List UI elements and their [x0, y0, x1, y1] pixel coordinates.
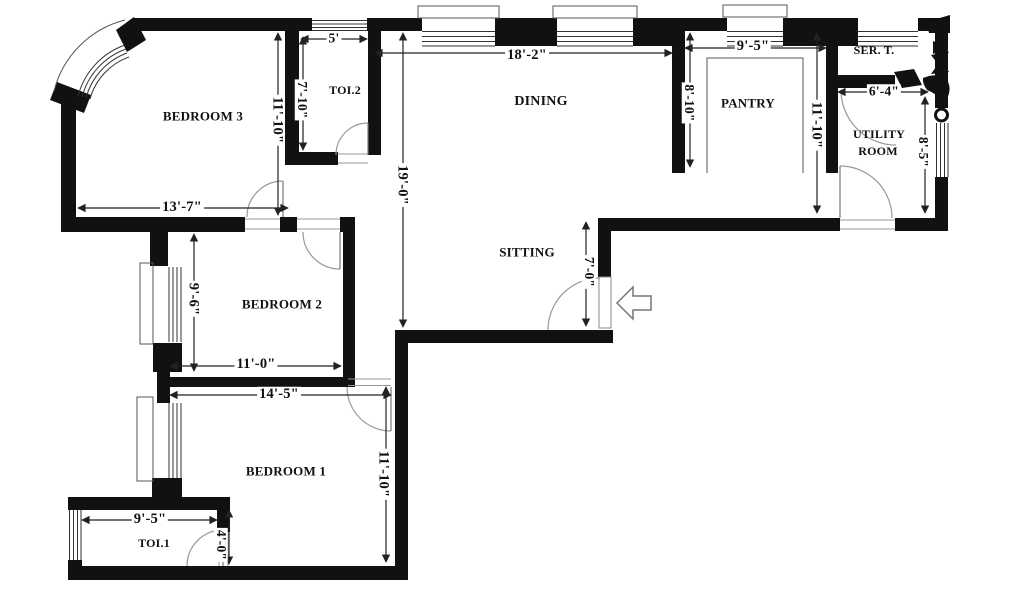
window-dining-left — [418, 6, 499, 46]
door-utility — [840, 166, 892, 218]
room-label-utility-line2: ROOM — [858, 145, 897, 157]
window-dining-right — [553, 6, 637, 46]
room-label-bedroom2: BEDROOM 2 — [242, 298, 322, 311]
dim-entry-height: 7'-0" — [582, 255, 596, 289]
door-bedroom2 — [303, 232, 340, 269]
dim-bedroom3-width: 13'-7" — [160, 200, 204, 215]
dim-dining-width: 18'-2" — [505, 48, 549, 63]
dim-toi1-height: 4'-0" — [214, 528, 228, 562]
window-bedroom1 — [137, 397, 181, 481]
window-toi2 — [312, 21, 367, 31]
dim-toi1-width: 9'-5" — [132, 512, 168, 527]
dim-toi2-width: 5' — [327, 31, 342, 45]
pantry-shelf — [707, 58, 803, 173]
dim-toi2-height: 7'-10" — [295, 79, 309, 120]
dim-bedroom2-height: 9'-6" — [186, 281, 201, 317]
room-label-sert: SER. T. — [854, 44, 895, 56]
dim-bedroom1-width: 14'-5" — [257, 387, 301, 402]
room-label-dining: DINING — [514, 95, 567, 109]
door-sills — [219, 154, 895, 566]
dim-pantry-width: 9'-5" — [735, 39, 771, 54]
window-toi1 — [70, 510, 82, 560]
entrance-door-jamb — [599, 277, 611, 328]
dim-bedroom1-height: 11'-10" — [376, 449, 391, 500]
pipe-column-symbol — [936, 109, 948, 121]
dim-bedroom2-width: 11'-0" — [234, 357, 277, 372]
room-label-bedroom1: BEDROOM 1 — [246, 465, 326, 478]
dim-pantry-height: 8'-10" — [682, 82, 696, 123]
room-label-toi1: TOI.1 — [138, 537, 170, 549]
window-bedroom2 — [140, 263, 181, 344]
dim-sert-width: 6'-4" — [867, 84, 901, 98]
room-label-sitting: SITTING — [499, 246, 555, 259]
door-bedroom1 — [347, 387, 391, 431]
window-utility — [937, 123, 949, 177]
floor-plan: BEDROOM 3 TOI.2 DINING PANTRY SER. T. UT… — [0, 0, 1024, 597]
room-label-toi2: TOI.2 — [329, 84, 361, 96]
door-toi2 — [336, 123, 368, 155]
dim-utility-height: 8'-5" — [916, 135, 930, 169]
room-label-bedroom3: BEDROOM 3 — [163, 110, 243, 123]
dim-dining-height: 19'-0" — [395, 163, 410, 207]
dim-bedroom3-height: 11'-10" — [270, 95, 285, 146]
room-label-pantry: PANTRY — [721, 97, 775, 110]
room-label-utility-line1: UTILITY — [853, 128, 905, 140]
entrance-arrow-icon — [617, 287, 651, 319]
dim-pantry-side-height: 11'-10" — [809, 100, 824, 151]
